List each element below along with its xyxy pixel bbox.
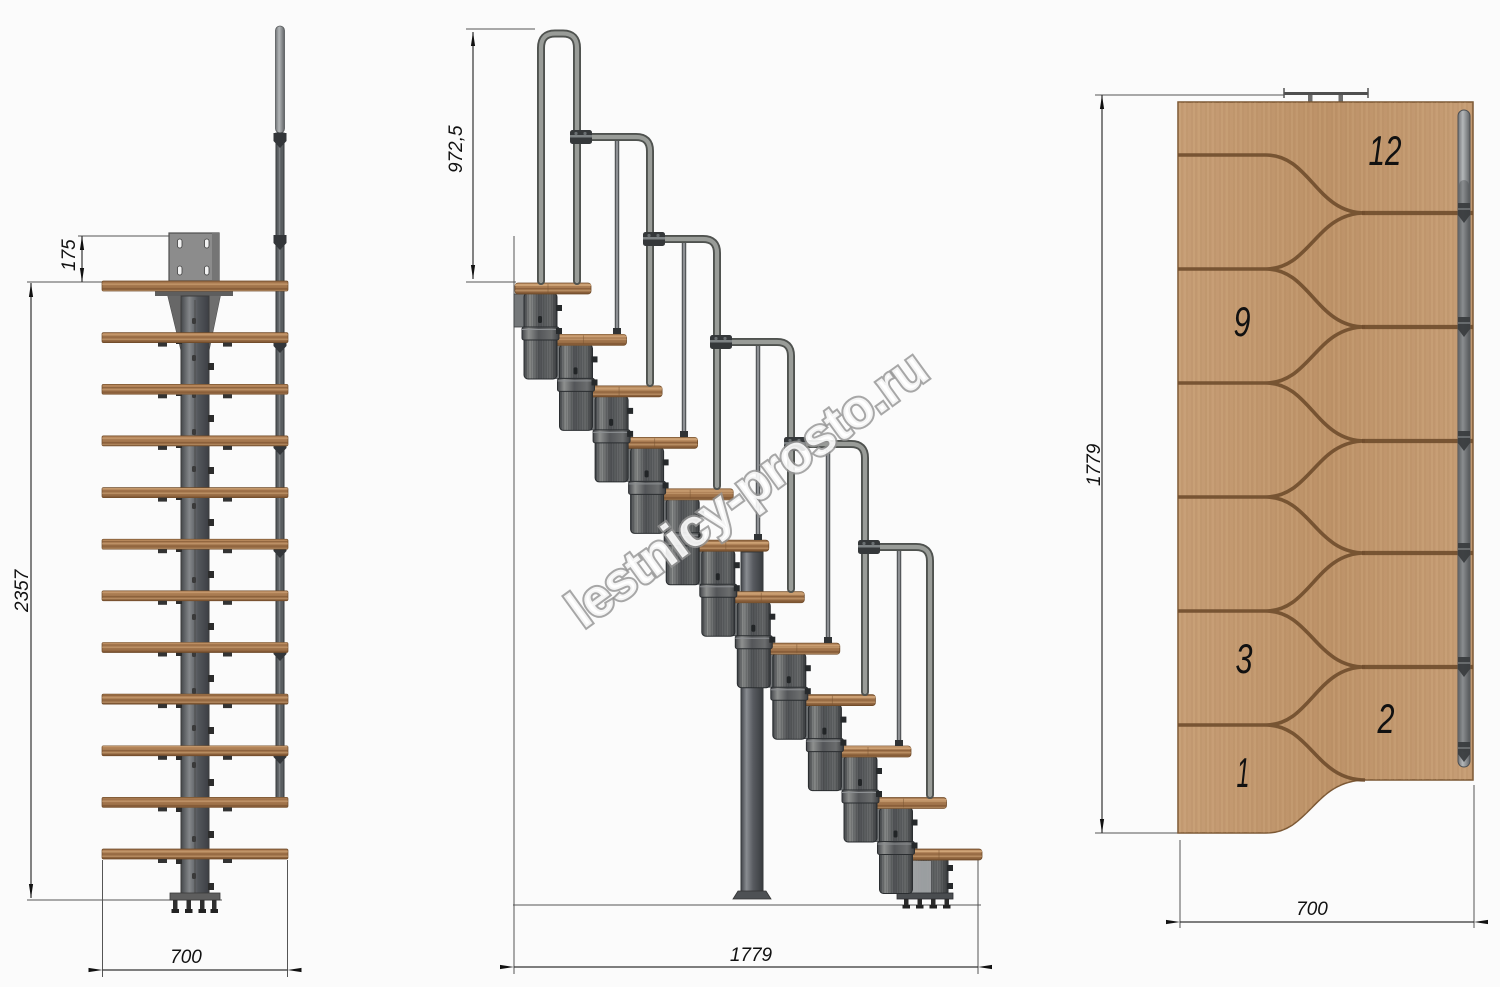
- svg-text:3: 3: [1236, 635, 1253, 682]
- svg-text:2: 2: [1377, 695, 1395, 742]
- svg-text:700: 700: [1296, 899, 1328, 920]
- svg-text:700: 700: [170, 947, 202, 968]
- svg-text:2357: 2357: [12, 568, 33, 613]
- svg-text:1: 1: [1237, 749, 1250, 796]
- svg-text:1779: 1779: [1084, 443, 1105, 486]
- svg-text:12: 12: [1369, 127, 1402, 174]
- svg-text:9: 9: [1234, 298, 1251, 345]
- svg-text:1779: 1779: [730, 945, 773, 966]
- svg-text:175: 175: [59, 239, 80, 271]
- svg-text:972,5: 972,5: [446, 125, 467, 173]
